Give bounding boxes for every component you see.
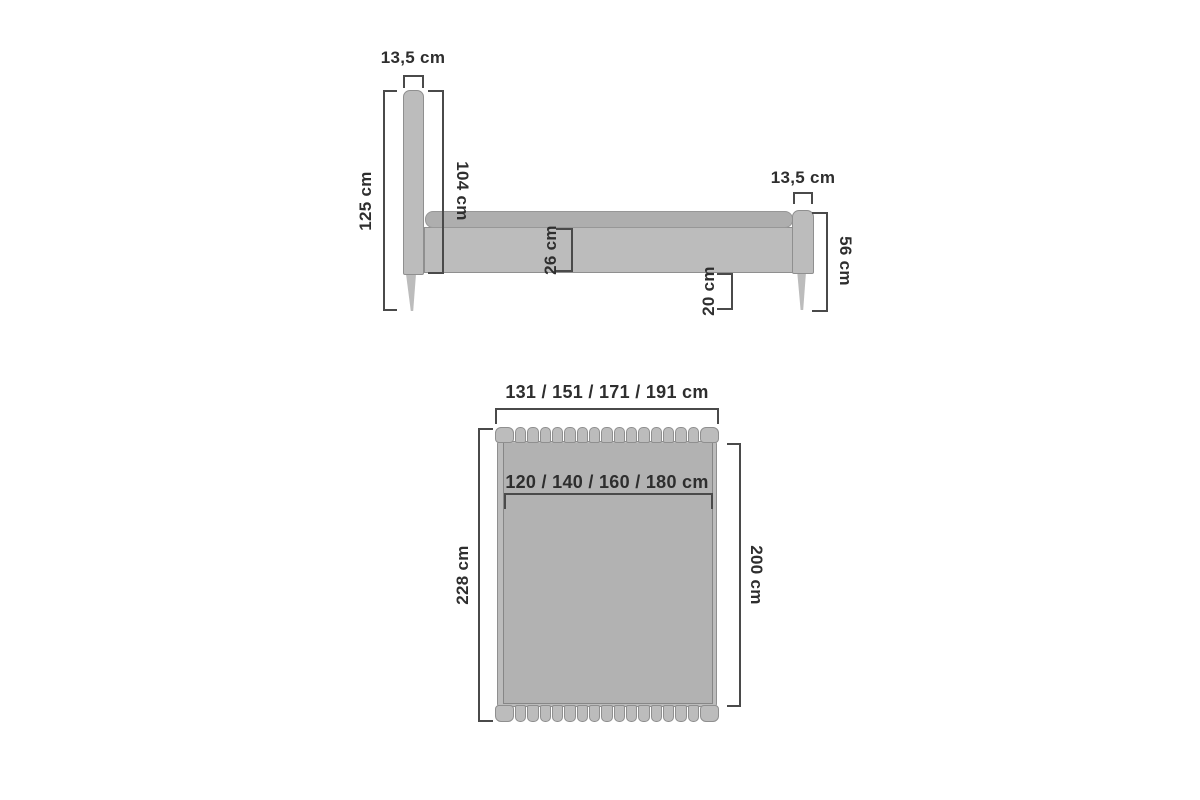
slat [564, 705, 575, 722]
dim-tick [403, 75, 405, 88]
slat [638, 705, 649, 722]
headboard-leg [406, 274, 416, 311]
slat [552, 705, 563, 722]
dim-tick [727, 705, 740, 707]
slat [515, 427, 526, 443]
dim-tick [478, 720, 493, 722]
slat [540, 705, 551, 722]
footboard-side [792, 210, 814, 274]
dim-mattress-width-label: 120 / 140 / 160 / 180 cm [487, 471, 727, 493]
slat [589, 705, 600, 722]
slat [577, 705, 588, 722]
dim-tick [422, 75, 424, 88]
dim-tick [556, 270, 571, 272]
headboard-side [403, 90, 424, 275]
slat [700, 427, 719, 443]
bed-side-rail [424, 227, 793, 273]
dim-tick [383, 90, 397, 92]
dim-frame-height-line [571, 228, 573, 272]
dim-tick [812, 212, 826, 214]
dim-headboard-height-line [442, 90, 444, 274]
dim-tick [793, 192, 795, 204]
dim-tick [717, 273, 731, 275]
slat [601, 427, 612, 443]
slat [651, 427, 662, 443]
dim-headboard-height-label: 104 cm [451, 151, 473, 231]
dim-total-height-line [383, 90, 385, 311]
dim-total-width-label: 131 / 151 / 171 / 191 cm [487, 381, 727, 403]
dim-tick [478, 428, 493, 430]
dim-headboard-width-label: 13,5 cm [368, 47, 458, 69]
mattress-side-strip [425, 211, 793, 228]
dim-footboard-width-line [793, 192, 813, 194]
slat [626, 427, 637, 443]
dim-tick [428, 90, 442, 92]
footboard-slats [495, 705, 719, 722]
slat [675, 705, 686, 722]
dim-total-height-label: 125 cm [355, 161, 377, 241]
dim-tick [812, 310, 826, 312]
slat [527, 705, 538, 722]
bed-dimension-diagram: 13,5 cm 125 cm 104 cm 26 cm 20 cm 13,5 c… [0, 0, 1200, 800]
slat [540, 427, 551, 443]
footboard-leg [796, 272, 806, 310]
slat [614, 427, 625, 443]
dim-floor-clearance-line [731, 273, 733, 310]
slat [651, 705, 662, 722]
slat [495, 427, 514, 443]
slat [601, 705, 612, 722]
dim-tick [811, 192, 813, 204]
dim-tick [717, 308, 731, 310]
slat [589, 427, 600, 443]
dim-tick [711, 493, 713, 509]
slat [614, 705, 625, 722]
headboard-slats [495, 427, 719, 443]
slat [638, 427, 649, 443]
dim-tick [504, 493, 506, 509]
dim-tick [717, 408, 719, 424]
dim-mattress-length-label: 200 cm [745, 535, 767, 615]
dim-total-width-line [495, 408, 719, 410]
dim-headboard-width-line [403, 75, 424, 77]
slat [552, 427, 563, 443]
dim-tick [495, 408, 497, 424]
slat [663, 705, 674, 722]
slat [688, 427, 699, 443]
dim-footboard-height-label: 56 cm [834, 221, 856, 301]
slat [577, 427, 588, 443]
slat [527, 427, 538, 443]
dim-footboard-width-label: 13,5 cm [758, 167, 848, 189]
slat [688, 705, 699, 722]
slat [515, 705, 526, 722]
dim-footboard-height-line [826, 212, 828, 312]
dim-tick [556, 228, 571, 230]
slat [626, 705, 637, 722]
slat [495, 705, 514, 722]
slat [675, 427, 686, 443]
dim-tick [727, 443, 740, 445]
dim-frame-height-label: 26 cm [540, 210, 562, 290]
slat [700, 705, 719, 722]
dim-floor-clearance-label: 20 cm [698, 251, 720, 331]
dim-mattress-width-line [504, 493, 713, 495]
dim-tick [428, 272, 442, 274]
slat [564, 427, 575, 443]
slat [663, 427, 674, 443]
dim-tick [383, 309, 397, 311]
dim-mattress-length-line [739, 443, 741, 707]
dim-total-length-label: 228 cm [452, 535, 474, 615]
dim-total-length-line [478, 428, 480, 722]
